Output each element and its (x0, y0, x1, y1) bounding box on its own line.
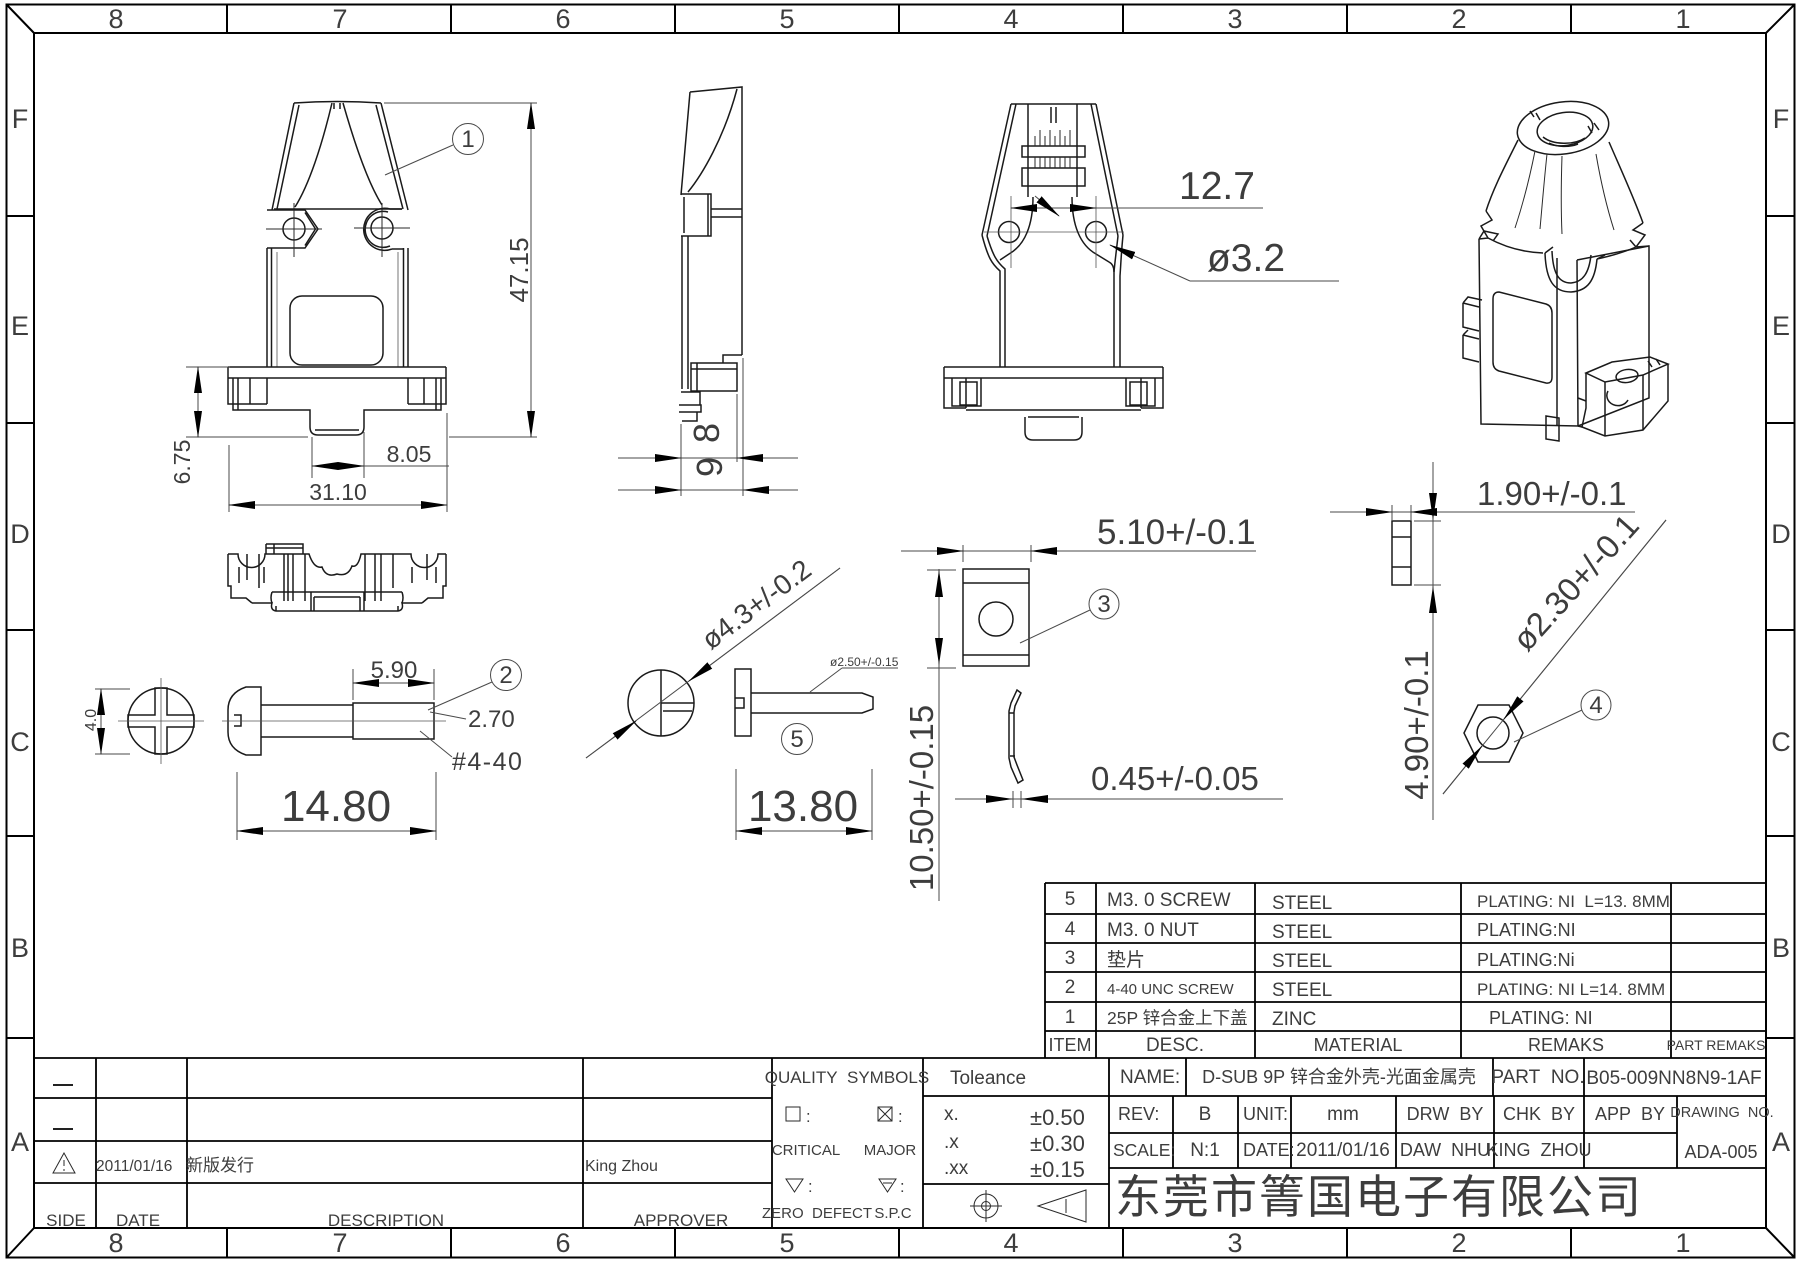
svg-text:东莞市箐国电子有限公司: 东莞市箐国电子有限公司 (1115, 1171, 1643, 1223)
svg-text:6: 6 (555, 1228, 570, 1258)
svg-text:DESC.: DESC. (1146, 1035, 1204, 1056)
svg-text:x.: x. (944, 1104, 959, 1125)
svg-text:SCALE:: SCALE: (1113, 1140, 1175, 1160)
svg-text:STEEL: STEEL (1272, 951, 1332, 972)
svg-text:.xx: .xx (944, 1158, 969, 1179)
svg-text:25P 锌合金上下盖: 25P 锌合金上下盖 (1107, 1008, 1248, 1028)
svg-text:5: 5 (1065, 889, 1076, 910)
svg-text:4.90+/-0.1: 4.90+/-0.1 (1398, 650, 1435, 800)
svg-text:REV:: REV: (1118, 1104, 1159, 1124)
svg-text:C: C (10, 727, 30, 757)
svg-text:ADA-005: ADA-005 (1684, 1142, 1757, 1162)
svg-text:±0.50: ±0.50 (1030, 1105, 1085, 1130)
svg-text:ZINC: ZINC (1272, 1009, 1316, 1030)
svg-text:PART NO.: PART NO. (1491, 1067, 1584, 1088)
svg-text::: : (808, 1178, 813, 1196)
svg-text:PLATING: NI: PLATING: NI (1489, 1008, 1593, 1028)
svg-text:#4-40: #4-40 (452, 748, 523, 776)
svg-text:UNIT:: UNIT: (1243, 1104, 1288, 1124)
svg-text:10.50+/-0.15: 10.50+/-0.15 (903, 705, 940, 891)
svg-text:N:1: N:1 (1190, 1140, 1220, 1161)
svg-text:DATE:: DATE: (1243, 1140, 1295, 1160)
svg-text:14.80: 14.80 (281, 782, 391, 831)
svg-text:B: B (1772, 933, 1790, 963)
svg-text:B: B (1199, 1104, 1212, 1125)
svg-text:M3. 0 NUT: M3. 0 NUT (1107, 920, 1199, 941)
svg-text:3: 3 (1097, 591, 1110, 618)
svg-text:8.05: 8.05 (387, 441, 432, 467)
svg-text:A: A (11, 1127, 29, 1157)
svg-text:新版发行: 新版发行 (186, 1156, 254, 1175)
svg-text:ø2.50+/-0.15: ø2.50+/-0.15 (830, 655, 899, 669)
svg-text:DRAWING NO.: DRAWING NO. (1670, 1105, 1773, 1121)
svg-text:F: F (1773, 104, 1790, 134)
svg-text:D: D (10, 519, 30, 549)
svg-text:DRW BY: DRW BY (1407, 1104, 1484, 1124)
svg-text::: : (900, 1178, 905, 1196)
svg-text:5: 5 (779, 4, 794, 34)
svg-text:±0.15: ±0.15 (1030, 1157, 1085, 1182)
svg-text:31.10: 31.10 (309, 479, 367, 505)
svg-text:5: 5 (790, 726, 803, 753)
svg-text:2: 2 (1451, 1228, 1466, 1258)
svg-text:7: 7 (332, 4, 347, 34)
svg-text::: : (898, 1108, 903, 1126)
svg-text:STEEL: STEEL (1272, 893, 1332, 914)
svg-text:QUALITY SYMBOLS: QUALITY SYMBOLS (765, 1068, 929, 1087)
svg-text:4: 4 (1589, 692, 1602, 719)
svg-text:MAJOR: MAJOR (864, 1142, 917, 1159)
svg-text:1: 1 (461, 126, 474, 153)
svg-text:ZERO DEFECT: ZERO DEFECT (762, 1205, 872, 1222)
svg-text:F: F (12, 104, 29, 134)
svg-text:8: 8 (108, 1228, 123, 1258)
svg-text:5.10+/-0.1: 5.10+/-0.1 (1097, 513, 1256, 552)
svg-text:3: 3 (1227, 1228, 1242, 1258)
svg-text:2: 2 (1451, 4, 1466, 34)
svg-text:DATE: DATE (116, 1211, 160, 1230)
svg-text:PLATING: NI L=13. 8MM: PLATING: NI L=13. 8MM (1477, 892, 1670, 911)
svg-text:Toleance: Toleance (950, 1068, 1026, 1089)
svg-text:1: 1 (1675, 1228, 1690, 1258)
svg-text:STEEL: STEEL (1272, 980, 1332, 1001)
svg-text::: : (806, 1108, 811, 1126)
svg-text:4.0: 4.0 (83, 709, 100, 731)
svg-text:5.90: 5.90 (371, 657, 418, 684)
svg-text:STEEL: STEEL (1272, 922, 1332, 943)
svg-text:E: E (1772, 311, 1790, 341)
svg-text:8: 8 (686, 423, 727, 443)
svg-text:B05-009NN8N9-1AF: B05-009NN8N9-1AF (1586, 1068, 1761, 1089)
svg-text:1: 1 (1675, 4, 1690, 34)
svg-text:S.P.C: S.P.C (874, 1205, 911, 1222)
svg-text:1.90+/-0.1: 1.90+/-0.1 (1477, 475, 1627, 512)
svg-text:4: 4 (1065, 919, 1076, 940)
svg-text:2: 2 (499, 662, 512, 689)
svg-text:PLATING:NI: PLATING:NI (1477, 920, 1576, 940)
svg-text:2011/01/16: 2011/01/16 (96, 1158, 172, 1175)
svg-text:M3. 0 SCREW: M3. 0 SCREW (1107, 890, 1231, 911)
svg-text:DAW NHU: DAW NHU (1400, 1140, 1490, 1160)
svg-text:47.15: 47.15 (504, 237, 534, 302)
svg-text:13.80: 13.80 (748, 782, 858, 831)
svg-text:PLATING: NI L=14. 8MM: PLATING: NI L=14. 8MM (1477, 980, 1665, 999)
svg-text:3: 3 (1065, 948, 1076, 969)
svg-text:King Zhou: King Zhou (585, 1158, 658, 1175)
svg-text:DESCRIPTION: DESCRIPTION (328, 1211, 444, 1230)
svg-text:A: A (1772, 1127, 1790, 1157)
svg-text:±0.30: ±0.30 (1030, 1131, 1085, 1156)
svg-text:2.70: 2.70 (468, 706, 515, 733)
svg-text:4-40 UNC SCREW: 4-40 UNC SCREW (1107, 981, 1235, 998)
svg-text:APPROVER: APPROVER (634, 1211, 728, 1230)
svg-text:8: 8 (108, 4, 123, 34)
svg-text:SIDE: SIDE (46, 1211, 86, 1230)
svg-text:5: 5 (779, 1228, 794, 1258)
svg-text:6: 6 (555, 4, 570, 34)
svg-text:CRITICAL: CRITICAL (772, 1142, 840, 1159)
svg-text:MATERIAL: MATERIAL (1314, 1035, 1403, 1055)
svg-text:E: E (11, 311, 29, 341)
svg-text:REMAKS: REMAKS (1528, 1035, 1604, 1055)
svg-text:9: 9 (689, 457, 730, 477)
svg-text:ITEM: ITEM (1049, 1035, 1092, 1055)
svg-text:1: 1 (1065, 1007, 1076, 1028)
svg-text:2011/01/16: 2011/01/16 (1296, 1140, 1390, 1161)
svg-text:3: 3 (1227, 4, 1242, 34)
svg-text:2: 2 (1065, 977, 1076, 998)
svg-text:APP BY: APP BY (1595, 1104, 1665, 1124)
svg-text:D-SUB 9P 锌合金外壳-光面金属壳: D-SUB 9P 锌合金外壳-光面金属壳 (1202, 1067, 1476, 1087)
svg-text:6.75: 6.75 (169, 440, 195, 485)
svg-text:.x: .x (944, 1132, 959, 1153)
svg-text:D: D (1771, 519, 1791, 549)
svg-text:12.7: 12.7 (1179, 165, 1255, 208)
svg-text:垫片: 垫片 (1107, 949, 1145, 971)
svg-text:4: 4 (1003, 1228, 1018, 1258)
svg-text:C: C (1771, 727, 1791, 757)
svg-text:mm: mm (1327, 1104, 1359, 1125)
svg-text:4: 4 (1003, 4, 1018, 34)
svg-text:PART REMAKS: PART REMAKS (1667, 1037, 1766, 1053)
svg-text:PLATING:Ni: PLATING:Ni (1477, 950, 1575, 970)
svg-text:7: 7 (332, 1228, 347, 1258)
svg-text:CHK BY: CHK BY (1503, 1104, 1575, 1124)
svg-text:NAME:: NAME: (1120, 1067, 1180, 1088)
svg-text:0.45+/-0.05: 0.45+/-0.05 (1091, 760, 1259, 797)
svg-text:B: B (11, 933, 29, 963)
svg-text:KING ZHOU: KING ZHOU (1486, 1140, 1591, 1160)
svg-text:ø3.2: ø3.2 (1207, 237, 1285, 280)
